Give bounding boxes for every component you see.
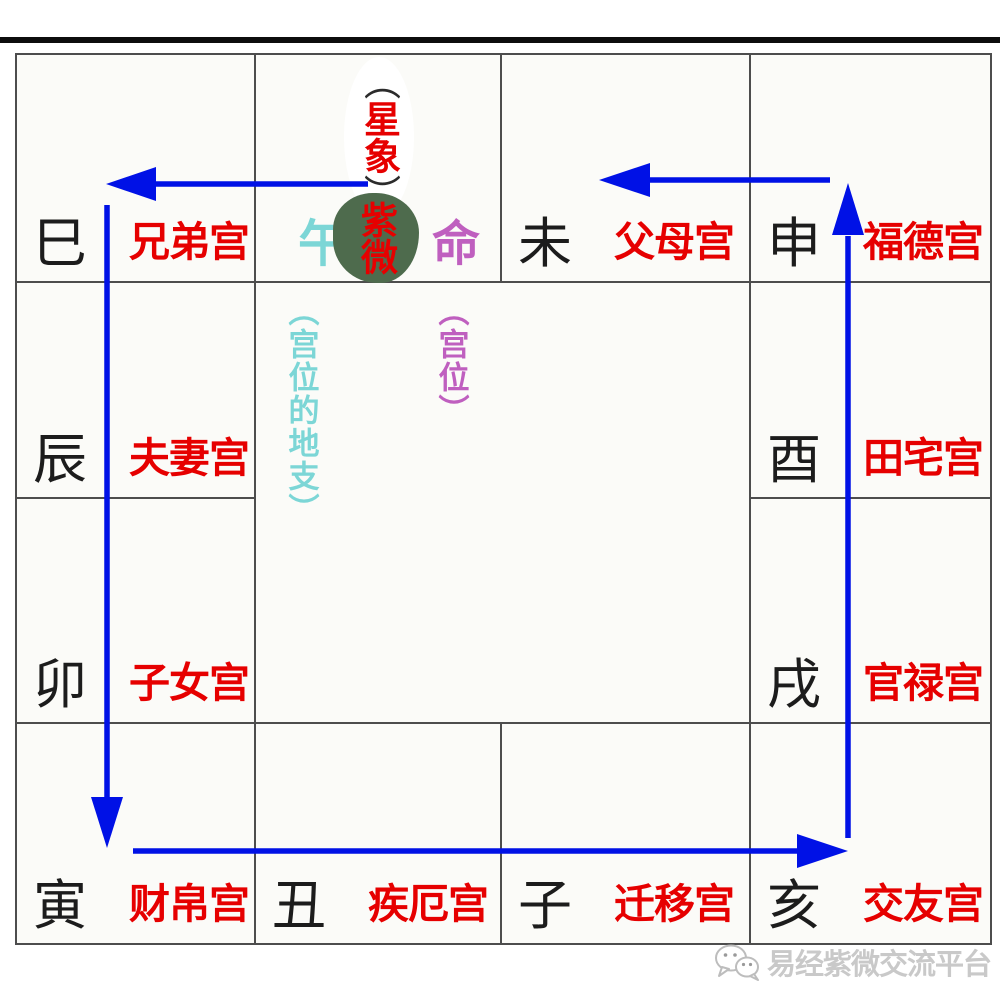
palace-name-label: 父母宫 xyxy=(614,222,734,263)
palace-cell-xu: 戌 官禄宫 xyxy=(750,498,991,723)
star-annotation-label: 星象 xyxy=(359,100,400,174)
ziwei-star-highlight-blob: 紫微 xyxy=(333,193,419,283)
palace-name-label: 迁移宫 xyxy=(614,884,734,925)
branch-label: 辰 xyxy=(33,433,87,487)
palace-name-label: 财帛宫 xyxy=(129,884,249,925)
branch-label: 亥 xyxy=(767,879,821,933)
palace-cell-wei: 未 父母宫 xyxy=(501,54,750,282)
palace-cell-mao: 卯 子女宫 xyxy=(16,498,255,723)
palace-cell-chou: 丑 疾厄宫 xyxy=(255,723,501,944)
branch-label: 卯 xyxy=(33,658,87,712)
branch-label: 酉 xyxy=(767,433,821,487)
palace-name-label: 夫妻宫 xyxy=(129,438,249,479)
watermark: 易经紫微交流平台 xyxy=(714,941,991,983)
palace-name-label: 官禄宫 xyxy=(863,663,983,704)
branch-label: 戌 xyxy=(767,658,821,712)
palace-cell-shen: 申 福德宫 xyxy=(750,54,991,282)
palace-cell-si: 巳 兄弟宫 xyxy=(16,54,255,282)
branch-label: 丑 xyxy=(272,879,326,933)
wechat-icon xyxy=(714,943,760,981)
center-legend-cell: （宫位的地支） （宫位） xyxy=(255,282,750,723)
palace-name-label: 交友宫 xyxy=(863,884,983,925)
branch-label: 巳 xyxy=(33,217,87,271)
palace-name-label: 福德宫 xyxy=(863,222,983,263)
palace-cell-yin: 寅 财帛宫 xyxy=(16,723,255,944)
palace-name-label: 田宅宫 xyxy=(863,438,983,479)
branch-label: 未 xyxy=(518,217,572,271)
palace-cell-you: 酉 田宅宫 xyxy=(750,282,991,498)
ming-palace-label: 命 xyxy=(432,221,480,269)
palace-cell-hai: 亥 交友宫 xyxy=(750,723,991,944)
palace-name-label: 兄弟宫 xyxy=(129,222,249,263)
branch-label: 子 xyxy=(518,879,572,933)
ming-palace-cell: （星象） 午 紫微 命 xyxy=(255,54,501,282)
palace-name-label: 疾厄宫 xyxy=(368,884,488,925)
palace-grid: 巳 兄弟宫 （星象） 午 紫微 命 未 父母宫 申 福德宫 辰 夫妻宫 （宫位的… xyxy=(15,53,992,945)
star-annotation-paren-open: （ xyxy=(359,63,400,100)
palace-name-label: 子女宫 xyxy=(129,663,249,704)
palace-cell-zi: 子 迁移宫 xyxy=(501,723,750,944)
branch-note-annotation: （宫位的地支） xyxy=(284,295,317,526)
branch-label: 寅 xyxy=(33,879,87,933)
ziwei-star-label: 紫微 xyxy=(358,201,395,275)
watermark-text: 易经紫微交流平台 xyxy=(767,941,991,983)
star-annotation-text: （星象） xyxy=(361,63,398,211)
palace-note-annotation: （宫位） xyxy=(434,295,467,427)
palace-cell-chen: 辰 夫妻宫 xyxy=(16,282,255,498)
branch-label: 申 xyxy=(767,217,821,271)
top-divider-bar xyxy=(0,37,1000,43)
